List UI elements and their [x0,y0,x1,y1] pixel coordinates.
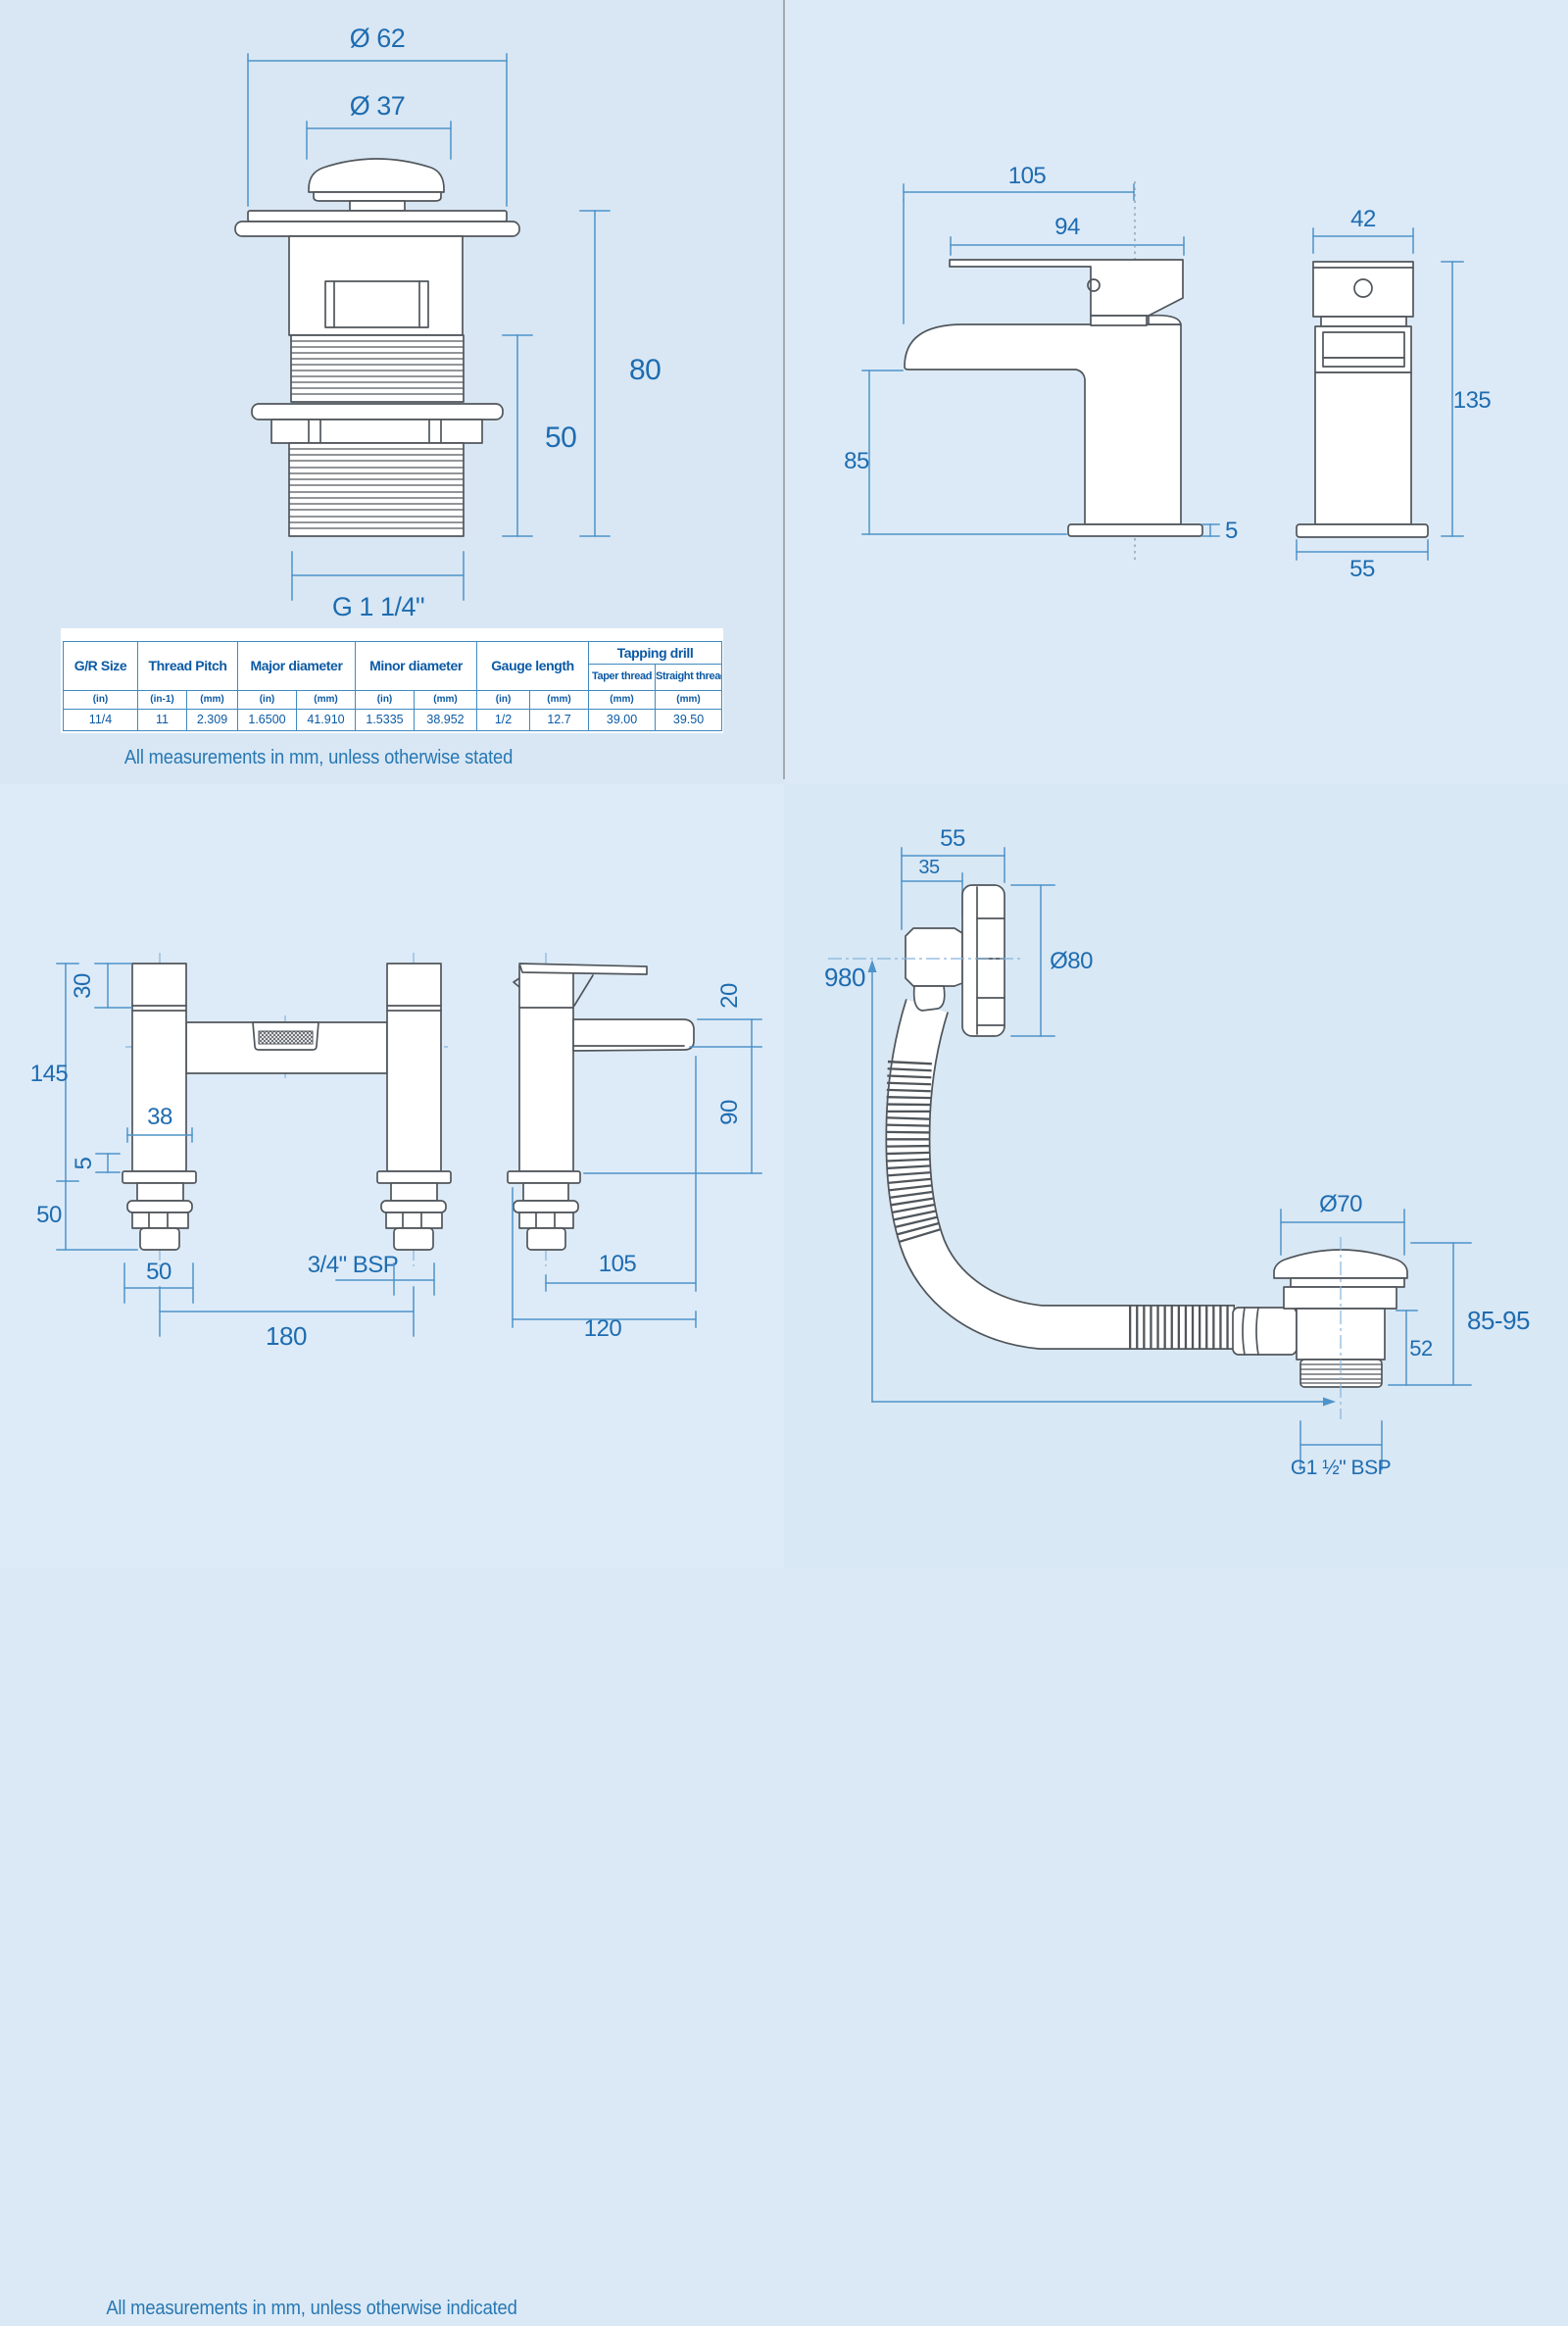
dim-label-overflow-depth: 55 [940,825,965,852]
quadrant-basin-mixer: 105 94 85 5 42 [784,0,1568,784]
table-cell: (mm) [187,691,238,710]
waste-top-flange [248,211,507,222]
dim-label-thread-length: 50 [545,421,576,454]
thread-spec-table-panel: G/R Size Thread Pitch Major diameter Min… [61,628,723,733]
table-header: Gauge length [477,642,589,691]
table-cell: 2.309 [187,710,238,731]
dim-label-spout-clearance: 90 [716,1100,743,1125]
table-cell: 39.00 [589,710,656,731]
mixer-handle-side [1313,262,1413,317]
dim-label-height-range: 85-95 [1467,1306,1530,1335]
table-cell: (mm) [297,691,356,710]
quadrant-bath-overflow: 55 35 Ø80 980 [784,784,1568,1568]
dim-label-base-width: 55 [1349,556,1375,582]
overflow-housing [906,928,962,986]
dim-label-spout-reach: 94 [1054,214,1080,240]
overflow-hose [907,1006,1235,1327]
dim-label-head-height: 30 [70,973,96,999]
mixer-body-side [1315,372,1411,524]
mixer-body-front [905,324,1181,524]
dim-label-cap-diameter: Ø 37 [350,91,406,121]
dim-label-hole-centres: 180 [266,1321,307,1351]
waste-backnut [271,420,482,443]
waste-upper-thread [291,335,464,402]
filler-left-shank [127,1183,192,1250]
filler-column-side [519,965,573,1171]
quadrant-basin-waste: Ø 62 Ø 37 [0,0,784,784]
dim-label-flange: 5 [71,1157,97,1169]
dim-label-shank-length: 50 [36,1202,62,1228]
filler-handle-side [519,964,647,974]
mixer-base-side [1297,524,1428,537]
mixer-handle-front [950,260,1183,316]
dim-label-body-width: 38 [147,1104,172,1130]
table-cell: (mm) [656,691,722,710]
dim-label-hose-length: 980 [824,963,865,992]
page: { "colors": { "background": "#dbe9f6", "… [0,0,1568,1568]
waste-cap-dome [309,159,444,192]
dim-label-body-depth: 35 [918,857,940,878]
mixer-base-front [1068,524,1202,536]
table-cell: 38.952 [415,710,477,731]
table-header: Taper thread [589,665,656,691]
table-cell: 11 [138,710,187,731]
table-cell: 39.50 [656,710,722,731]
filler-left-pillar [132,964,186,1171]
waste-backnut-flange [252,404,503,420]
table-header: Straight thread [656,665,722,691]
table-header: G/R Size [64,642,138,691]
table-cell: 1/2 [477,710,530,731]
dim-label-thread-size: G 1 1/4" [332,592,424,621]
quadrant-divider-line [783,0,785,779]
table-cell: (mm) [589,691,656,710]
dim-label-face-diameter: Ø80 [1050,948,1093,974]
table-cell: 1.5335 [356,710,415,731]
table-cell: 41.910 [297,710,356,731]
dim-label-spout-reach: 105 [599,1251,637,1277]
table-cell: 12.7 [530,710,589,731]
basin-mixer-diagram: 105 94 85 5 42 [784,0,1568,784]
thread-spec-table: G/R Size Thread Pitch Major diameter Min… [63,641,722,731]
dim-label-connection: G1 ½" BSP [1291,1457,1391,1479]
filler-right-shank [381,1183,446,1250]
table-cell: 1.6500 [238,710,297,731]
table-cell: (in) [477,691,530,710]
overflow-faceplate [962,885,1004,1036]
table-header: Tapping drill [589,642,722,665]
table-header: Minor diameter [356,642,477,691]
dim-label-cap-diameter: Ø70 [1319,1191,1362,1217]
table-cell: (mm) [415,691,477,710]
table-cell: 11/4 [64,710,138,731]
filler-right-pillar [387,964,441,1171]
dim-label-base-plate: 5 [1225,518,1238,544]
filler-shank-side [514,1183,578,1250]
bath-filler-diagram: 30 145 38 5 50 50 3/4" BSP 180 [0,784,784,1568]
table-cell: (in) [238,691,297,710]
table-header: Major diameter [238,642,356,691]
dim-label-overall-height: 145 [30,1061,69,1087]
dim-label-base-width: 50 [146,1259,171,1285]
dim-label-total-height: 80 [629,354,661,386]
bath-overflow-diagram: 55 35 Ø80 980 [784,784,1568,1568]
quadrant-bath-filler: 30 145 38 5 50 50 3/4" BSP 180 [0,784,784,1568]
waste-body [289,236,463,335]
caption-basin-waste: All measurements in mm, unless otherwise… [124,747,513,769]
table-cell: (in) [356,691,415,710]
dim-label-connection: 3/4" BSP [308,1252,399,1278]
dim-label-body-width: 42 [1350,206,1376,232]
caption-bath-filler: All measurements in mm, unless otherwise… [106,2298,516,2320]
filler-spout-grate [259,1031,313,1044]
dim-label-spout-mouth: 20 [716,983,743,1009]
dim-label-spout-height: 85 [844,448,869,474]
table-cell: (mm) [530,691,589,710]
table-cell: (in) [64,691,138,710]
dim-label-body-height: 52 [1409,1336,1433,1361]
table-cell: (in-1) [138,691,187,710]
dim-label-outer-diameter: Ø 62 [350,24,406,53]
table-header: Thread Pitch [138,642,238,691]
dim-label-overall-height: 135 [1453,387,1492,414]
dim-label-overall-depth: 105 [1008,163,1047,189]
